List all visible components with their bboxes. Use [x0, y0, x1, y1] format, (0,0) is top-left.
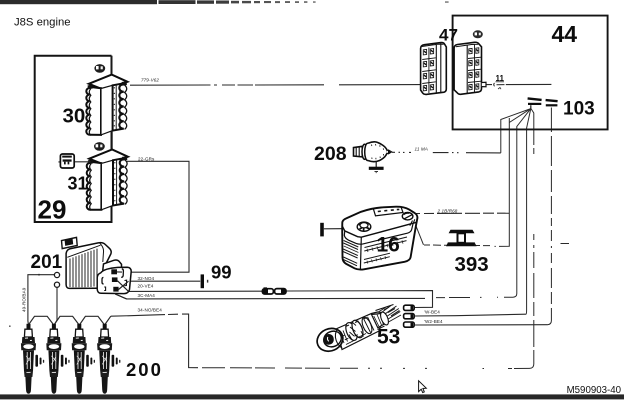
- svg-text:208: 208: [314, 143, 347, 165]
- svg-text:'W2-BE4: 'W2-BE4: [424, 319, 443, 324]
- svg-text:32-NO4: 32-NO4: [138, 276, 155, 281]
- svg-text:16: 16: [377, 234, 400, 257]
- svg-text:200: 200: [126, 359, 163, 380]
- svg-text:22-GRs: 22-GRs: [138, 156, 155, 161]
- svg-text:J8S engine: J8S engine: [14, 17, 71, 29]
- svg-text:103: 103: [563, 98, 595, 119]
- svg-text:99: 99: [211, 261, 232, 282]
- svg-text:30: 30: [63, 105, 86, 128]
- svg-text:393: 393: [455, 253, 489, 276]
- svg-text:779-V62: 779-V62: [141, 78, 159, 83]
- svg-text:2 1B/R68: 2 1B/R68: [437, 209, 458, 214]
- svg-text:44: 44: [552, 21, 578, 47]
- svg-text:'W-BE4: 'W-BE4: [424, 310, 440, 315]
- svg-text:31: 31: [68, 174, 88, 194]
- svg-text:53: 53: [377, 325, 400, 348]
- svg-text:49-RO/BA9: 49-RO/BA9: [22, 287, 27, 312]
- svg-text:201: 201: [31, 252, 63, 273]
- svg-text:34-NO/BE4: 34-NO/BE4: [138, 307, 163, 312]
- svg-text:29: 29: [38, 195, 67, 225]
- svg-text:11 MA: 11 MA: [415, 147, 428, 152]
- svg-text:20-VE4: 20-VE4: [138, 284, 154, 289]
- svg-text:3C-MA4: 3C-MA4: [138, 293, 156, 298]
- svg-text:47: 47: [439, 25, 458, 44]
- svg-text:M590903-40: M590903-40: [567, 385, 622, 396]
